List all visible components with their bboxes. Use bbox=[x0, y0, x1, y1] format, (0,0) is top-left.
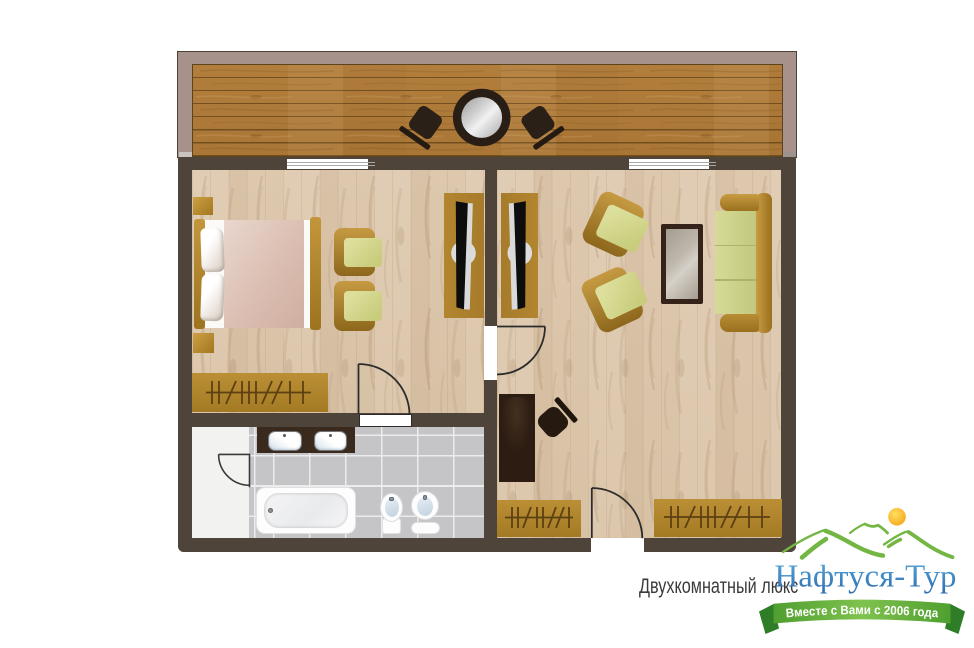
svg-text:Нафтуся-Тур: Нафтуся-Тур bbox=[775, 559, 957, 594]
